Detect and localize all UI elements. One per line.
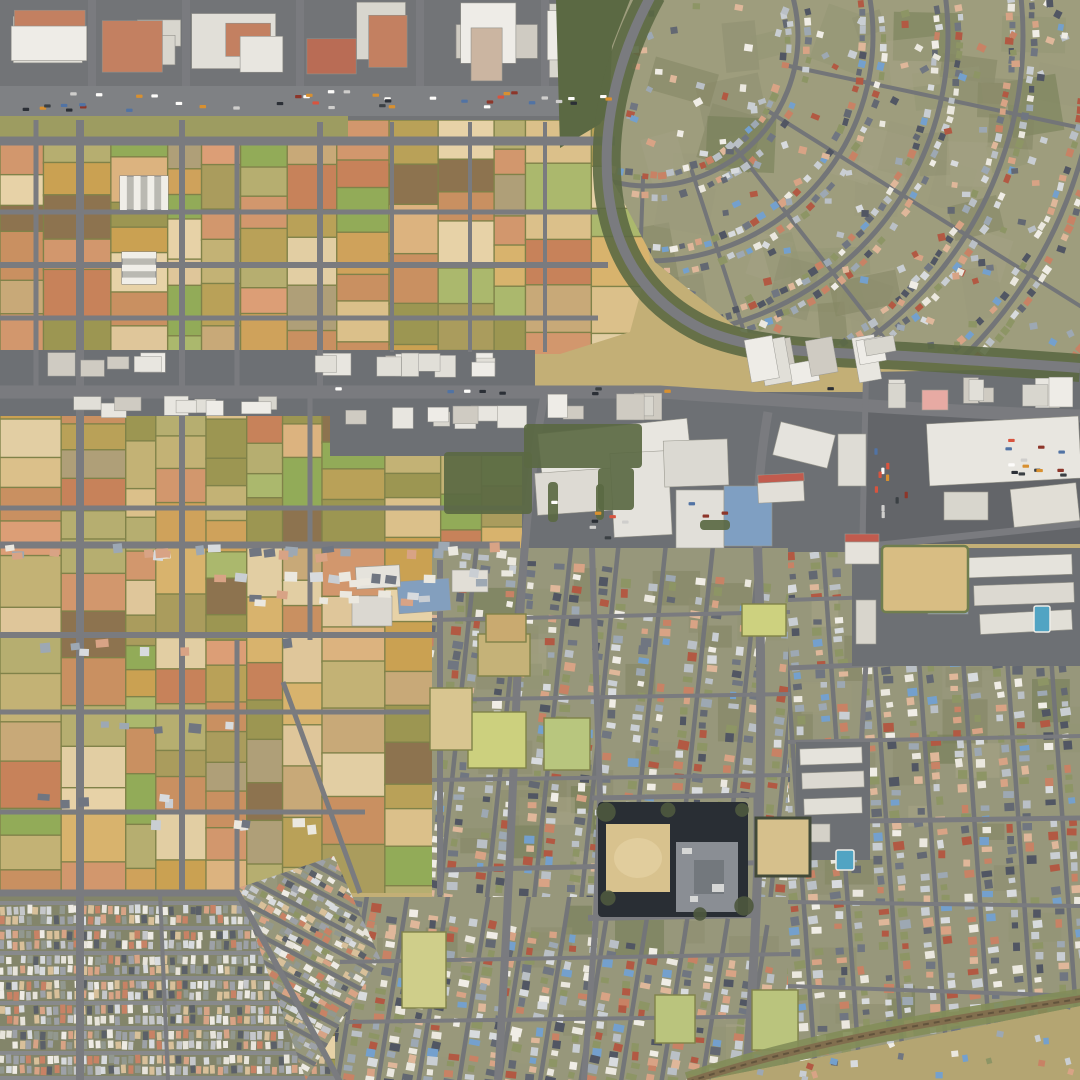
paint-tint-overlay	[0, 0, 1080, 1080]
aerial-map-svg	[0, 0, 1080, 1080]
aerial-painting	[0, 0, 1080, 1080]
